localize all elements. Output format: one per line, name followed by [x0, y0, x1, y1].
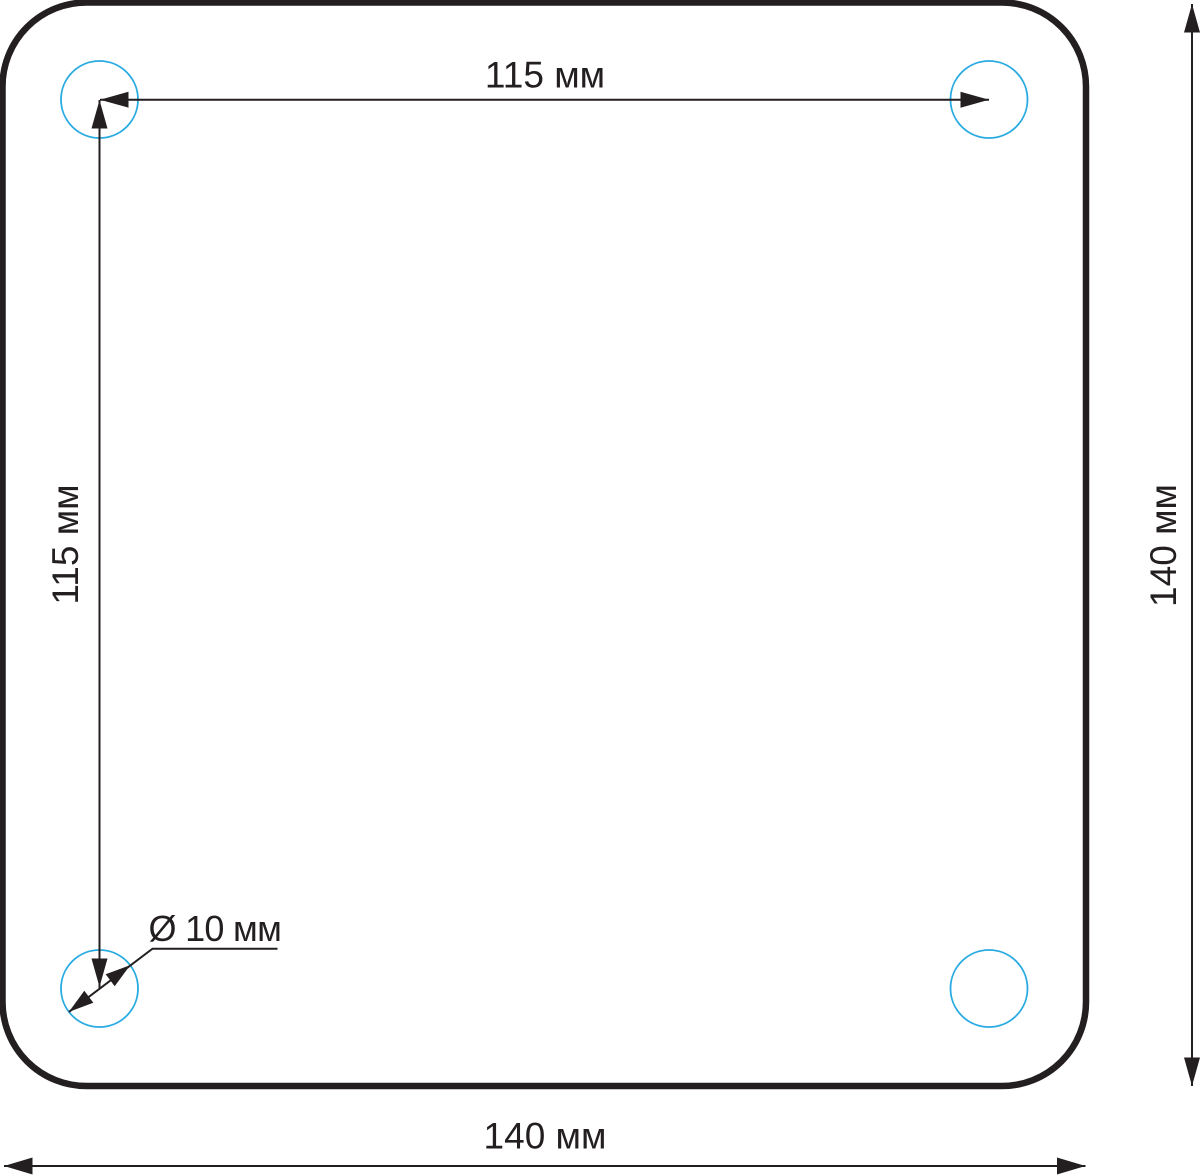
- svg-text:115 мм: 115 мм: [45, 484, 86, 604]
- svg-text:140 мм: 140 мм: [484, 1116, 607, 1157]
- svg-text:115 мм: 115 мм: [485, 55, 605, 96]
- svg-text:140 мм: 140 мм: [1143, 484, 1184, 607]
- svg-text:Ø 10 мм: Ø 10 мм: [149, 908, 282, 949]
